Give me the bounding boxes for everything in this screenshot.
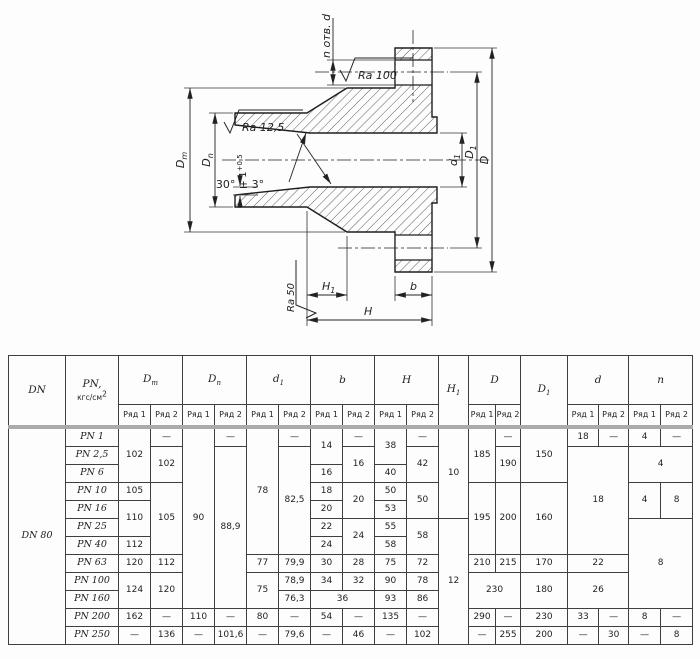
value-cell: 40 (375, 465, 407, 483)
dim-label-d1: d1 (447, 154, 462, 166)
value-cell: — (661, 609, 693, 627)
value-cell: 54 (311, 609, 343, 627)
value-cell: 30 (311, 555, 343, 573)
column-header: H1 (439, 356, 469, 428)
value-cell: 78 (247, 427, 279, 555)
flange-section-drawing: n отв. d Ra 12,5 Ra 100 Ra 50 30° ± 3° 1… (0, 0, 700, 355)
value-cell: — (599, 609, 629, 627)
column-header: PN,кгс/см2 (66, 356, 119, 428)
value-cell: — (629, 627, 661, 645)
value-cell: 8 (629, 519, 693, 609)
value-cell: — (469, 627, 496, 645)
value-cell: 22 (568, 555, 629, 573)
value-cell: 16 (311, 465, 343, 483)
pn-label: PN 40 (66, 537, 119, 555)
value-cell: 78,9 (279, 573, 311, 591)
table-row: PN 250—136—101,6—79,6—46—102—255200—30—8 (9, 627, 693, 645)
value-cell: — (568, 627, 599, 645)
row-series-header: Ряд 2 (599, 405, 629, 428)
value-cell: — (279, 609, 311, 627)
dim-label-Dm: Dm (174, 152, 189, 168)
value-cell: 24 (343, 519, 375, 555)
value-cell: 102 (119, 427, 151, 483)
value-cell: 290 (469, 609, 496, 627)
value-cell: 34 (311, 573, 343, 591)
value-cell: 26 (568, 573, 629, 609)
value-cell: 75 (247, 573, 279, 609)
value-cell: 180 (521, 573, 568, 609)
roughness-hole-label: Ra 100 (358, 69, 397, 82)
value-cell: 255 (496, 627, 521, 645)
value-cell: 18 (311, 483, 343, 501)
value-cell: 110 (119, 501, 151, 537)
value-cell: 78 (407, 573, 439, 591)
value-cell: 102 (151, 447, 183, 483)
table-row: PN 2,510288,982,51642190184 (9, 447, 693, 465)
value-cell: — (496, 427, 521, 447)
value-cell: 32 (343, 573, 375, 591)
value-cell: 112 (151, 555, 183, 573)
flange-dimension-table: DNPN,кгс/см2DmDnd1bHH1DD1dnРяд 1Ряд 2Ряд… (8, 355, 693, 645)
value-cell: 75 (375, 555, 407, 573)
column-header: d (568, 356, 629, 405)
value-cell: 190 (496, 447, 521, 483)
holes-count-label: n отв. d (320, 13, 333, 58)
value-cell: 77 (247, 555, 279, 573)
value-cell: 20 (311, 501, 343, 519)
flange-drawing-area: n отв. d Ra 12,5 Ra 100 Ra 50 30° ± 3° 1… (0, 0, 700, 355)
value-cell: — (661, 427, 693, 447)
value-cell: 42 (407, 447, 439, 483)
value-cell: 215 (496, 555, 521, 573)
pn-label: PN 16 (66, 501, 119, 519)
pn-label: PN 200 (66, 609, 119, 627)
value-cell: 50 (375, 483, 407, 501)
pn-label: PN 100 (66, 573, 119, 591)
pn-label: PN 2,5 (66, 447, 119, 465)
value-cell: — (599, 427, 629, 447)
row-series-header: Ряд 1 (469, 405, 496, 428)
column-header: Dn (183, 356, 247, 405)
dim-label-H: H (364, 305, 372, 318)
value-cell: 90 (183, 427, 215, 609)
pn-label: PN 25 (66, 519, 119, 537)
value-cell: 12 (439, 519, 469, 645)
pn-label: PN 250 (66, 627, 119, 645)
value-cell: 170 (521, 555, 568, 573)
dn-label: DN 80 (9, 427, 66, 645)
value-cell: 36 (311, 591, 375, 609)
value-cell: 80 (247, 609, 279, 627)
value-cell: 8 (661, 483, 693, 519)
bolt-hole-upper (396, 60, 431, 85)
dim-label-b: b (410, 280, 417, 293)
value-cell: 88,9 (215, 447, 247, 609)
dim-label-D1: D1 (463, 145, 478, 159)
value-cell: 150 (521, 427, 568, 483)
leader-ra-bore (297, 134, 331, 184)
value-cell: — (496, 609, 521, 627)
value-cell: 72 (407, 555, 439, 573)
row-series-header: Ряд 1 (119, 405, 151, 428)
value-cell: 112 (119, 537, 151, 555)
column-header: H (375, 356, 439, 405)
value-cell: — (215, 427, 247, 447)
value-cell: 200 (521, 627, 568, 645)
table-row: DN 80PN 1102—90—78—14—38—10185—15018—4— (9, 427, 693, 447)
row-series-header: Ряд 1 (247, 405, 279, 428)
column-header: Dm (119, 356, 183, 405)
value-cell: — (375, 627, 407, 645)
value-cell: 86 (407, 591, 439, 609)
value-cell: 10 (439, 427, 469, 519)
value-cell: 16 (343, 447, 375, 483)
land-dimension-label: 1+0,5 (236, 154, 249, 177)
value-cell: 18 (568, 427, 599, 447)
pn-label: PN 6 (66, 465, 119, 483)
row-series-header: Ряд 2 (343, 405, 375, 428)
value-cell: — (183, 627, 215, 645)
value-cell: 101,6 (215, 627, 247, 645)
value-cell: 4 (629, 483, 661, 519)
row-series-header: Ряд 2 (215, 405, 247, 428)
value-cell: — (343, 609, 375, 627)
roughness-symbol-face (296, 260, 316, 318)
value-cell: 105 (119, 483, 151, 501)
roughness-face-label: Ra 50 (286, 283, 297, 312)
row-series-header: Ряд 2 (407, 405, 439, 428)
row-series-header: Ряд 1 (183, 405, 215, 428)
pn-label: PN 160 (66, 591, 119, 609)
pn-label: PN 1 (66, 427, 119, 447)
value-cell: 30 (599, 627, 629, 645)
value-cell: 124 (119, 573, 151, 609)
value-cell: 110 (183, 609, 215, 627)
column-header: n (629, 356, 693, 405)
value-cell: 195 (469, 483, 496, 555)
dim-label-H1: H1 (322, 280, 335, 295)
column-header: d1 (247, 356, 311, 405)
value-cell: — (247, 627, 279, 645)
value-cell: 58 (407, 519, 439, 555)
value-cell: 120 (151, 573, 183, 609)
value-cell: 200 (496, 483, 521, 555)
value-cell: 105 (151, 483, 183, 555)
value-cell: 185 (469, 427, 496, 483)
row-series-header: Ряд 2 (279, 405, 311, 428)
row-series-header: Ряд 2 (151, 405, 183, 428)
value-cell: 90 (375, 573, 407, 591)
value-cell: 8 (661, 627, 693, 645)
value-cell: 38 (375, 427, 407, 465)
value-cell: 93 (375, 591, 407, 609)
column-header: D1 (521, 356, 568, 428)
value-cell: 33 (568, 609, 599, 627)
value-cell: — (279, 427, 311, 447)
value-cell: 230 (521, 609, 568, 627)
value-cell: 136 (151, 627, 183, 645)
value-cell: 230 (469, 573, 521, 609)
table-row: PN 631201127779,93028757221021517022 (9, 555, 693, 573)
dim-label-Dn: Dn (200, 153, 215, 167)
value-cell: 50 (407, 483, 439, 519)
value-cell: 82,5 (279, 447, 311, 555)
value-cell: 4 (629, 447, 693, 483)
pn-label: PN 63 (66, 555, 119, 573)
value-cell: — (407, 427, 439, 447)
value-cell: 22 (311, 519, 343, 537)
value-cell: 162 (119, 609, 151, 627)
leader-bevel-angle (289, 133, 306, 182)
value-cell: — (151, 427, 183, 447)
dimension-table-area: DNPN,кгс/см2DmDnd1bHH1DD1dnРяд 1Ряд 2Ряд… (0, 355, 700, 645)
value-cell: 24 (311, 537, 343, 555)
value-cell: — (407, 609, 439, 627)
row-series-header: Ряд 1 (568, 405, 599, 428)
value-cell: 120 (119, 555, 151, 573)
value-cell: 55 (375, 519, 407, 537)
bevel-angle-label: 30° ± 3° (216, 178, 264, 191)
row-series-header: Ряд 1 (629, 405, 661, 428)
value-cell: 135 (375, 609, 407, 627)
pn-label: PN 10 (66, 483, 119, 501)
column-header: D (469, 356, 521, 405)
value-cell: 79,6 (279, 627, 311, 645)
row-series-header: Ряд 2 (496, 405, 521, 428)
value-cell: 210 (469, 555, 496, 573)
value-cell: 28 (343, 555, 375, 573)
value-cell: 79,9 (279, 555, 311, 573)
table-row: PN 200162—110—80—54—135—290—23033—8— (9, 609, 693, 627)
value-cell: 14 (311, 427, 343, 465)
value-cell: 76,3 (279, 591, 311, 609)
row-series-header: Ряд 2 (661, 405, 693, 428)
roughness-bore-label: Ra 12,5 (242, 121, 284, 134)
value-cell: 20 (343, 483, 375, 519)
bolt-hole-lower (396, 235, 431, 260)
value-cell: — (119, 627, 151, 645)
column-header: DN (9, 356, 66, 428)
value-cell: — (151, 609, 183, 627)
value-cell: — (343, 427, 375, 447)
value-cell: 160 (521, 483, 568, 555)
value-cell: 4 (629, 427, 661, 447)
value-cell: 53 (375, 501, 407, 519)
value-cell: 46 (343, 627, 375, 645)
value-cell: 58 (375, 537, 407, 555)
value-cell: 18 (568, 447, 629, 555)
row-series-header: Ряд 1 (375, 405, 407, 428)
row-series-header: Ряд 1 (311, 405, 343, 428)
value-cell: — (215, 609, 247, 627)
value-cell: 8 (629, 609, 661, 627)
dim-label-D: D (478, 156, 491, 164)
value-cell: 102 (407, 627, 439, 645)
value-cell: — (311, 627, 343, 645)
table-row: PN 1001241207578,93432907823018026 (9, 573, 693, 591)
column-header: b (311, 356, 375, 405)
